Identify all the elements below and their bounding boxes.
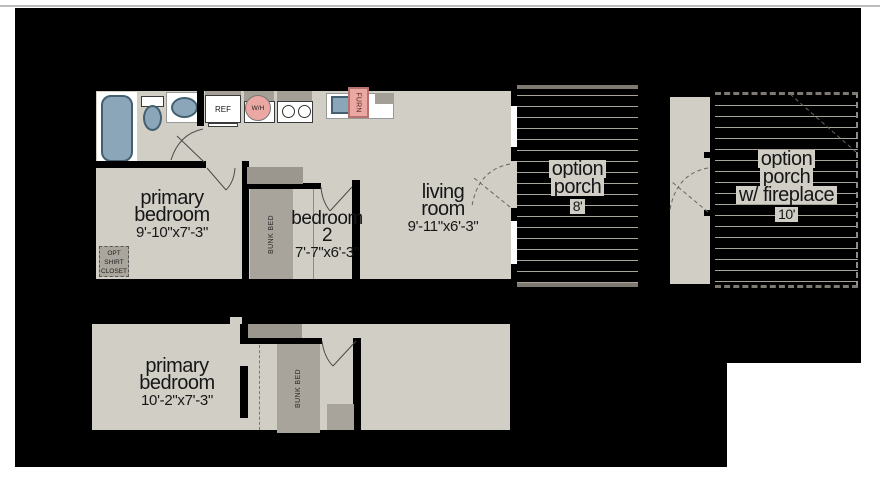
- porch-name-line: w/ fireplace: [736, 186, 837, 204]
- room-dimensions: 9'-10"x7'-3": [92, 225, 252, 240]
- option-porch-top-edge: [517, 85, 638, 89]
- porch-dimensions: 8': [570, 199, 585, 214]
- lower-bunkroom-right-wall: [353, 338, 361, 430]
- option-porch-bottom-edge: [517, 283, 638, 287]
- bedroom2-closet-header: [247, 167, 303, 184]
- option-porch-label: option porch 8': [517, 160, 638, 214]
- room-name-line: bedroom: [97, 375, 257, 392]
- wall-bath-bedroom: [90, 161, 206, 168]
- porch-name-line: porch: [551, 178, 605, 196]
- bunk-bed-label: BUNK BED: [295, 369, 302, 408]
- lower-dresser: [327, 404, 354, 430]
- room-dimensions: 9'-11"x6'-3": [383, 219, 503, 234]
- fireplace-porch-wall-cap-bottom: [670, 284, 710, 291]
- furnace-label: FURN: [355, 92, 362, 112]
- page-corner-cutout: [727, 363, 880, 479]
- lower-closet-dashed-line: [259, 345, 260, 430]
- refrigerator-door: [208, 123, 238, 127]
- burner-icon-2: [298, 105, 311, 118]
- refrigerator-icon: REF: [205, 95, 241, 123]
- closet-label-line: OPT: [107, 250, 120, 257]
- wall-bath-kitchen: [197, 91, 204, 126]
- toilet-bowl-icon: [143, 105, 162, 131]
- refrigerator-label: REF: [215, 105, 231, 114]
- fireplace-porch-label: option porch w/ fireplace 10': [715, 150, 858, 222]
- porch-dimensions: 10': [775, 207, 798, 222]
- room-name-line: bedroom: [92, 207, 252, 224]
- closet-label-line: CLOSET: [101, 268, 127, 275]
- lower-wall-segment-1: [240, 324, 248, 338]
- lower-closet-header: [245, 324, 302, 338]
- door-jamb-top: [704, 152, 710, 158]
- opt-shirt-closet: OPT SHIRT CLOSET: [99, 246, 129, 277]
- water-heater-label: W/H: [252, 105, 265, 112]
- door-jamb-bottom: [704, 210, 710, 216]
- room-dimensions: 7'-7"x6'-3": [267, 245, 387, 260]
- primary-bedroom-lower-label: primary bedroom 10'-2"x7'-3": [97, 358, 257, 408]
- room-name-line: 2: [267, 227, 387, 244]
- fireplace-porch-wall-fragment: [670, 97, 710, 284]
- room-dimensions: 10'-2"x7'-3": [97, 393, 257, 408]
- bedroom2-label: bedroom 2 7'-7"x6'-3": [267, 210, 387, 260]
- bathtub-icon: [101, 95, 133, 162]
- burner-icon-1: [282, 105, 295, 118]
- fireplace-porch-wall-cap-top: [670, 90, 710, 97]
- primary-bedroom-top-label: primary bedroom 9'-10"x7'-3": [92, 190, 252, 240]
- top-divider-line: [0, 5, 880, 7]
- floor-plan-page: REF W/H FURN primary bedroom 9'-10"x7'-3…: [0, 0, 880, 479]
- bath-sink-icon: [171, 97, 198, 118]
- closet-label-line: SHIRT: [104, 259, 123, 266]
- kitchen-cabinet-4: [375, 93, 394, 104]
- bunk-bed-lower: BUNK BED: [277, 344, 320, 433]
- furnace-icon: FURN: [348, 87, 369, 118]
- room-name-line: room: [383, 201, 503, 218]
- water-heater-icon: W/H: [245, 95, 271, 121]
- living-room-label: living room 9'-11"x6'-3": [383, 184, 503, 234]
